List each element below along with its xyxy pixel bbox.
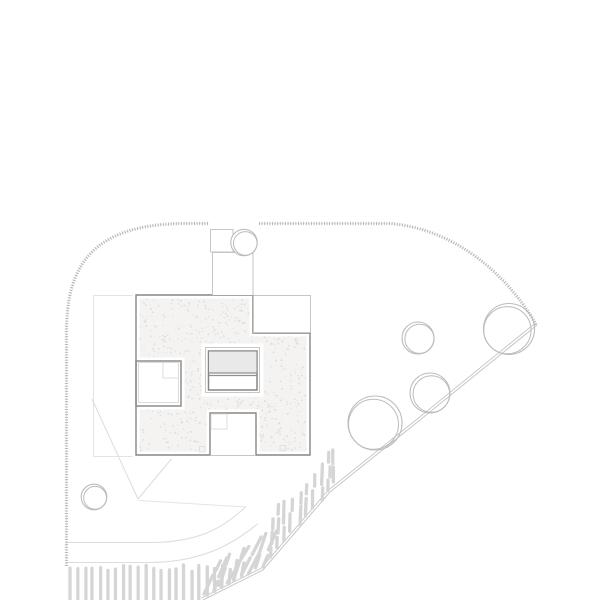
- slope-hatch-stroke: [278, 519, 279, 533]
- walkway-line: [67, 507, 247, 543]
- tree-icon: [484, 307, 531, 354]
- entry-shaft-fill: [213, 252, 254, 295]
- courtyard-detail: [163, 363, 179, 379]
- courtyard-wall: [136, 361, 181, 406]
- tree-icon: [349, 399, 399, 449]
- lower-floor-rect: [94, 296, 137, 457]
- slope-hatch-stroke: [300, 506, 301, 525]
- site-plan-drawing: [0, 0, 600, 600]
- courtyard-detail: [139, 363, 179, 403]
- tree-icon: [405, 324, 434, 353]
- tree-icon: [84, 486, 107, 509]
- slope-hatch-stroke: [226, 554, 230, 565]
- site-plan-canvas: [0, 0, 600, 600]
- entry-planter: [211, 229, 258, 295]
- slope-hatch-stroke: [216, 561, 221, 571]
- notch-terrace: [254, 296, 311, 333]
- stair-landing: [209, 352, 257, 373]
- planter-box: [211, 230, 234, 253]
- slope-hatch: [70, 450, 333, 600]
- walkway-line: [139, 501, 246, 508]
- slope-hatch-stroke: [322, 464, 323, 484]
- tree-icon: [413, 376, 450, 413]
- lower-floor-outline: [94, 296, 137, 457]
- slope-hatch-stroke: [305, 498, 306, 515]
- building-roof: [135, 294, 311, 456]
